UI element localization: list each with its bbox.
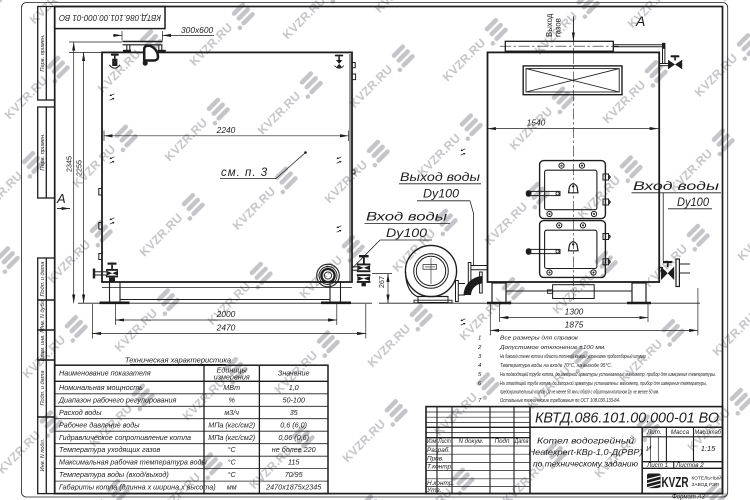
- svg-text:Масштаб: Масштаб: [694, 429, 721, 436]
- svg-text:Гидравлическое сопротивление к: Гидравлическое сопротивление котла: [59, 433, 191, 442]
- svg-text:Перв. примен.: Перв. примен.: [40, 133, 46, 170]
- svg-text:Дата: Дата: [514, 438, 529, 445]
- svg-text:Перв. примен.: Перв. примен.: [40, 34, 46, 71]
- svg-text:Масса: Масса: [671, 429, 690, 436]
- svg-text:Значение: Значение: [278, 369, 310, 378]
- svg-text:%: %: [228, 395, 235, 404]
- svg-text:N докум.: N докум.: [458, 438, 483, 445]
- svg-text:Габариты котла (длинна х ширин: Габариты котла (длинна х ширина х высота…: [59, 483, 216, 492]
- svg-text:Dy100: Dy100: [423, 189, 460, 201]
- svg-text:ЗАВОД РЭП: ЗАВОД РЭП: [692, 482, 720, 488]
- svg-text:°С: °С: [228, 445, 237, 454]
- svg-text:А: А: [635, 13, 645, 29]
- svg-text:Dy100: Dy100: [386, 228, 428, 240]
- svg-text:Dy100: Dy100: [677, 197, 710, 209]
- svg-text:Рабочее давление воды: Рабочее давление воды: [59, 420, 140, 429]
- svg-text:Наименование показателя: Наименование показателя: [59, 369, 151, 378]
- svg-text:Вход воды: Вход воды: [633, 179, 719, 193]
- svg-text:см. п. 3: см. п. 3: [221, 167, 268, 179]
- svg-text:Инв. N подл.: Инв. N подл.: [40, 439, 46, 472]
- svg-text:1:15: 1:15: [701, 444, 716, 453]
- svg-text:2: 2: [477, 345, 482, 351]
- svg-text:МПа (кгс/см2): МПа (кгс/см2): [208, 433, 255, 442]
- svg-text:Подп. и дата: Подп. и дата: [40, 370, 46, 405]
- svg-text:50-100: 50-100: [283, 395, 305, 404]
- svg-text:На подводящей трубе котла, д: На подводящей трубе котла, до запорной а…: [500, 371, 716, 378]
- svg-text:Допустимое отклонение ±100 мм: Допустимое отклонение ±100 мм.: [499, 345, 606, 351]
- svg-text:300х600: 300х600: [181, 25, 213, 35]
- svg-text:Пров.: Пров.: [427, 455, 444, 462]
- svg-text:Диапазон рабочего регулировани: Диапазон рабочего регулирования: [58, 395, 177, 404]
- svg-text:КВТД.086.101.00.000-01 ВО: КВТД.086.101.00.000-01 ВО: [535, 411, 719, 427]
- svg-text:Подп: Подп: [495, 438, 510, 445]
- svg-text:Выход воды: Выход воды: [400, 170, 480, 184]
- svg-text:0,06 (0,6): 0,06 (0,6): [278, 433, 309, 442]
- svg-text:2470х1875х2345: 2470х1875х2345: [265, 483, 322, 492]
- svg-text:1300: 1300: [565, 307, 584, 317]
- svg-text:Лист 1: Лист 1: [646, 462, 668, 469]
- svg-text:1: 1: [478, 336, 481, 342]
- svg-text:Максимальная рабочая температу: Максимальная рабочая температура воды: [59, 458, 207, 467]
- svg-text:°С: °С: [228, 470, 237, 479]
- svg-text:м3/ч: м3/ч: [224, 408, 239, 417]
- svg-text:1875: 1875: [565, 319, 584, 329]
- svg-text:0,6 (6,0): 0,6 (6,0): [280, 420, 307, 429]
- svg-text:Листов 2: Листов 2: [675, 462, 704, 469]
- svg-text:Техническая характеристика: Техническая характеристика: [125, 356, 231, 365]
- svg-text:Подп. и дата: Подп. и дата: [40, 261, 46, 296]
- svg-text:Лист: Лист: [437, 438, 450, 445]
- svg-text:измерения: измерения: [214, 373, 250, 382]
- svg-text:Формат А3: Формат А3: [672, 494, 705, 500]
- svg-text:Температура воды (вход/выход): Температура воды (вход/выход): [59, 470, 169, 479]
- svg-text:Изм: Изм: [427, 438, 437, 445]
- svg-text:Все размеры для справок: Все размеры для справок: [500, 336, 578, 342]
- svg-text:2240: 2240: [216, 125, 236, 135]
- svg-text:газов: газов: [554, 18, 563, 37]
- svg-text:Heatexpert-КВр-1,0-Д(РВР): Heatexpert-КВр-1,0-Д(РВР): [529, 448, 643, 457]
- svg-text:115: 115: [288, 458, 300, 467]
- svg-text:Котел водогрейный: Котел водогрейный: [537, 437, 635, 446]
- svg-text:2255: 2255: [74, 160, 83, 176]
- svg-text:1540: 1540: [527, 118, 546, 128]
- svg-text:Расход воды: Расход воды: [59, 408, 102, 417]
- svg-text:KVZR: KVZR: [662, 475, 689, 491]
- svg-text:На отводящей трубе котла, до з: На отводящей трубе котла, до запорной ар…: [500, 380, 707, 387]
- svg-text:Взам. инв. N: Взам. инв. N: [40, 328, 46, 362]
- svg-text:Разраб.: Разраб.: [427, 446, 450, 454]
- svg-text:Лит.: Лит.: [646, 429, 662, 436]
- svg-text:А: А: [56, 191, 66, 206]
- svg-text:Н.контр.: Н.контр.: [427, 480, 454, 487]
- svg-text:267: 267: [377, 276, 386, 288]
- svg-text:На боковой стенке котла в обла: На боковой стенке котла в области топочн…: [500, 353, 646, 360]
- svg-text:Т.контр.: Т.контр.: [427, 464, 453, 471]
- svg-text:КВТД.086.101.00.000-01 ВО: КВТД.086.101.00.000-01 ВО: [59, 13, 161, 23]
- svg-text:МПа (кгс/см2): МПа (кгс/см2): [208, 420, 255, 429]
- svg-text:35: 35: [290, 408, 299, 417]
- svg-text:2470: 2470: [216, 323, 236, 333]
- svg-text:мм: мм: [227, 483, 237, 492]
- svg-text:Остальные технические требован: Остальные технические требования по ОСТ …: [500, 398, 620, 404]
- svg-text:МВт: МВт: [223, 383, 240, 392]
- svg-text:2000: 2000: [216, 309, 236, 319]
- svg-text:Номинальная мощность: Номинальная мощность: [59, 383, 143, 392]
- svg-text:не более 220: не более 220: [272, 445, 316, 454]
- svg-text:°С: °С: [228, 458, 237, 467]
- svg-text:по техническому заданию: по техническому заданию: [533, 460, 638, 469]
- svg-text:1,0: 1,0: [289, 383, 299, 392]
- svg-text:предохранительный клапан Dу н: предохранительный клапан Dу не менее 50 …: [500, 389, 659, 396]
- svg-text:Утв.: Утв.: [426, 487, 442, 494]
- svg-text:70/95: 70/95: [285, 470, 304, 479]
- svg-text:Температура уходящих газов: Температура уходящих газов: [59, 445, 161, 454]
- svg-text:Инв. N дубл.: Инв. N дубл.: [40, 299, 46, 331]
- svg-text:Вход воды: Вход воды: [366, 210, 447, 224]
- svg-text:Температура воды на входе 70°: Температура воды на входе 70°С, на выход…: [500, 363, 612, 369]
- svg-text:2345: 2345: [65, 156, 74, 172]
